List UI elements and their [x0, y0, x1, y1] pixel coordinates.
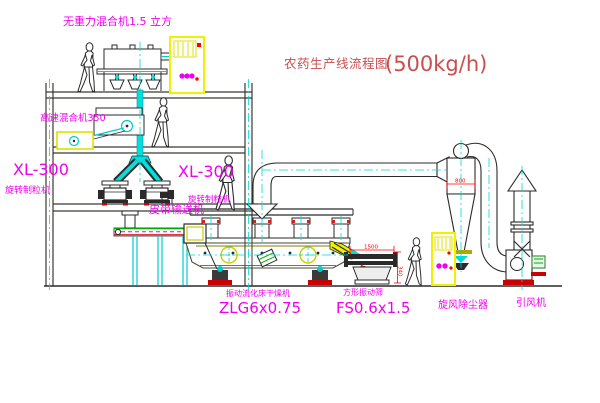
granulator-left [98, 181, 132, 206]
induced-draft-fan [503, 250, 546, 285]
person-ground [405, 238, 421, 285]
person-second-floor [152, 98, 169, 147]
label-granulator-right-model: XL-300 [178, 162, 234, 181]
control-cabinet-upper [170, 37, 204, 93]
dim-cyclone-800: 800 [455, 179, 466, 185]
page-title: 农药生产线流程图 [284, 56, 388, 71]
label-belt-conveyor: 皮带输送机 [149, 202, 204, 216]
label-fan: 引风机 [516, 296, 546, 309]
control-cabinet-lower [432, 233, 455, 285]
page-title-capacity: (500kg/h) [385, 52, 487, 76]
process-flow-drawing: 1500 340 800 农药生产线流程图 (500kg/h) 无重力混合机1.… [0, 0, 600, 403]
vibrating-sieve [344, 252, 397, 284]
label-sieve-model: FS0.6x1.5 [336, 299, 410, 317]
label-fluid-bed-model: ZLG6x0.75 [219, 299, 301, 317]
label-cyclone: 旋风除尘器 [438, 298, 488, 311]
label-sieve-name: 方形振动筛 [343, 287, 383, 297]
flow-diagram-canvas: 1500 340 800 农药生产线流程图 (500kg/h) 无重力混合机1.… [0, 0, 600, 403]
feed-inlet-box [184, 224, 206, 243]
label-fluid-bed-name: 振动流化床干燥机 [226, 288, 290, 298]
gravity-free-mixer [97, 45, 172, 91]
label-gravity-free-mixer: 无重力混合机1.5 立方 [63, 14, 172, 28]
dim-sieve-1500: 1500 [364, 245, 378, 251]
exhaust-duct [247, 157, 449, 219]
label-granulator-left-name: 旋转制粒机 [5, 184, 50, 196]
label-high-speed-mixer: 高速混合机350 [40, 112, 106, 124]
person-top-floor [78, 43, 95, 92]
dim-sieve-340: 340 [397, 266, 403, 277]
discharge-pipe [122, 211, 138, 228]
feed-pipe [116, 90, 160, 182]
label-granulator-left-model: XL-300 [13, 160, 69, 179]
